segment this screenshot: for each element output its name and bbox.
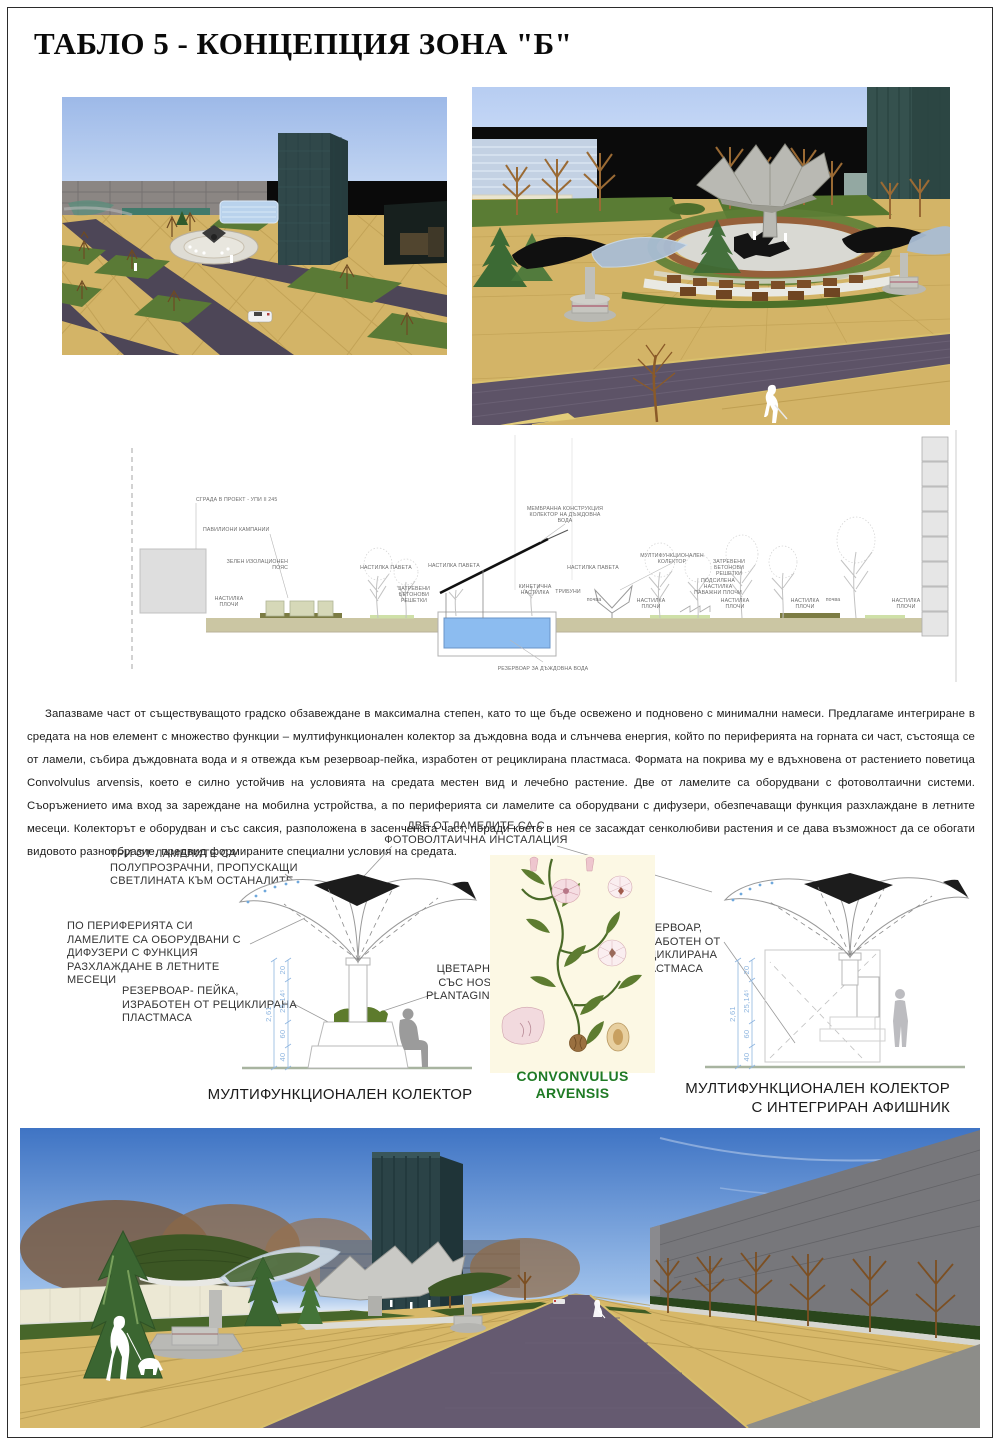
section-annotation: НАСТИЛКА ПАВЕТА: [428, 563, 480, 569]
render-collector-plaza-image: [472, 87, 950, 425]
section-annotation: РЕШЕТКИ: [401, 598, 427, 604]
section-drawing: СГРАДА В ПРОЕКТ - УПИ II 245ПАВИЛИОНИ КА…: [120, 430, 980, 692]
section-annotation: ПАВАЖНИ ПЛОЧИ: [694, 590, 742, 596]
section-annotation: ВОДА: [558, 518, 573, 524]
botanical-illustration-convolvulus: [490, 855, 655, 1073]
section-annotation: ПЛОЧИ: [220, 602, 239, 608]
section-annotation: РЕШЕТКИ: [716, 571, 742, 577]
section-annotation: почва: [587, 597, 602, 603]
diagram-collector-poster: 40 60 25,14⁵ 20 2,61: [700, 862, 970, 1077]
section-annotation: ПЛОЧИ: [897, 604, 916, 610]
render-aerial-plaza-image: [62, 97, 447, 355]
page-title: ТАБЛО 5 - КОНЦЕПЦИЯ ЗОНА "Б": [34, 26, 572, 62]
svg-text:40: 40: [278, 1053, 287, 1062]
svg-text:20: 20: [742, 966, 751, 975]
section-annotation: ПАВИЛИОНИ КАМПАНИИ: [203, 527, 269, 533]
diagram-collector-poster-drawing: 40 60 25,14⁵ 20 2,61: [700, 862, 970, 1077]
section-annotation: почва: [826, 597, 841, 603]
caption-multifunctional-collector: МУЛТИФУНКЦИОНАЛЕН КОЛЕКТОР: [190, 1086, 490, 1103]
svg-text:25,14⁵: 25,14⁵: [742, 989, 751, 1013]
svg-text:40: 40: [742, 1053, 751, 1062]
presentation-board: ТАБЛО 5 - КОНЦЕПЦИЯ ЗОНА "Б": [0, 0, 1000, 1445]
caption-convolvulus-arvensis: CONVONVULUS ARVENSIS: [495, 1068, 650, 1102]
render-boulevard-panorama: [20, 1128, 980, 1428]
section-annotation: СГРАДА В ПРОЕКТ - УПИ II 245: [196, 497, 277, 503]
section-annotation: НАСТИЛКА: [521, 590, 550, 596]
svg-text:2,61: 2,61: [728, 1006, 737, 1022]
diagram-collector: 40 60 25,14⁵ 20 2,61: [230, 862, 480, 1077]
render-boulevard-panorama-image: [20, 1128, 980, 1428]
svg-text:60: 60: [278, 1030, 287, 1039]
section-annotation: НАСТИЛКА ПАВЕТА: [567, 565, 619, 571]
render-collector-plaza: [472, 87, 950, 425]
svg-text:2,61: 2,61: [264, 1006, 273, 1022]
section-drawing-image: СГРАДА В ПРОЕКТ - УПИ II 245ПАВИЛИОНИ КА…: [120, 430, 980, 692]
render-aerial-plaza: [62, 97, 447, 355]
section-annotation: КОЛЕКТОР: [658, 559, 687, 565]
svg-text:25,14⁵: 25,14⁵: [278, 989, 287, 1013]
section-annotation: ПЛОЧИ: [796, 604, 815, 610]
svg-text:60: 60: [742, 1030, 751, 1039]
callout-photovoltaic: ДВЕ ОТ ЛАМЕЛИТЕ СА С ФОТОВОЛТАИЧНА ИНСТА…: [345, 820, 607, 847]
standing-person-silhouette: [893, 989, 908, 1047]
botanical-drawing: [490, 855, 655, 1073]
section-annotation: ТРИБУНИ: [555, 589, 581, 595]
section-annotation: НАСТИЛКА ПАВЕТА: [360, 565, 412, 571]
caption-collector-with-poster: МУЛТИФУНКЦИОНАЛЕН КОЛЕКТОР С ИНТЕГРИРАН …: [655, 1079, 950, 1117]
section-annotation: ПЛОЧИ: [726, 604, 745, 610]
section-annotation: РЕЗЕРВОАР ЗА ДЪЖДОВНА ВОДА: [498, 666, 589, 672]
diagram-collector-drawing: 40 60 25,14⁵ 20 2,61: [230, 862, 480, 1077]
section-annotation: ПОЯС: [272, 565, 288, 571]
callout-diffusers: ПО ПЕРИФЕРИЯТА СИ ЛАМЕЛИТЕ СА ОБОРУДВАНИ…: [67, 920, 241, 988]
section-annotation: ПЛОЧИ: [642, 604, 661, 610]
svg-text:20: 20: [278, 966, 287, 975]
